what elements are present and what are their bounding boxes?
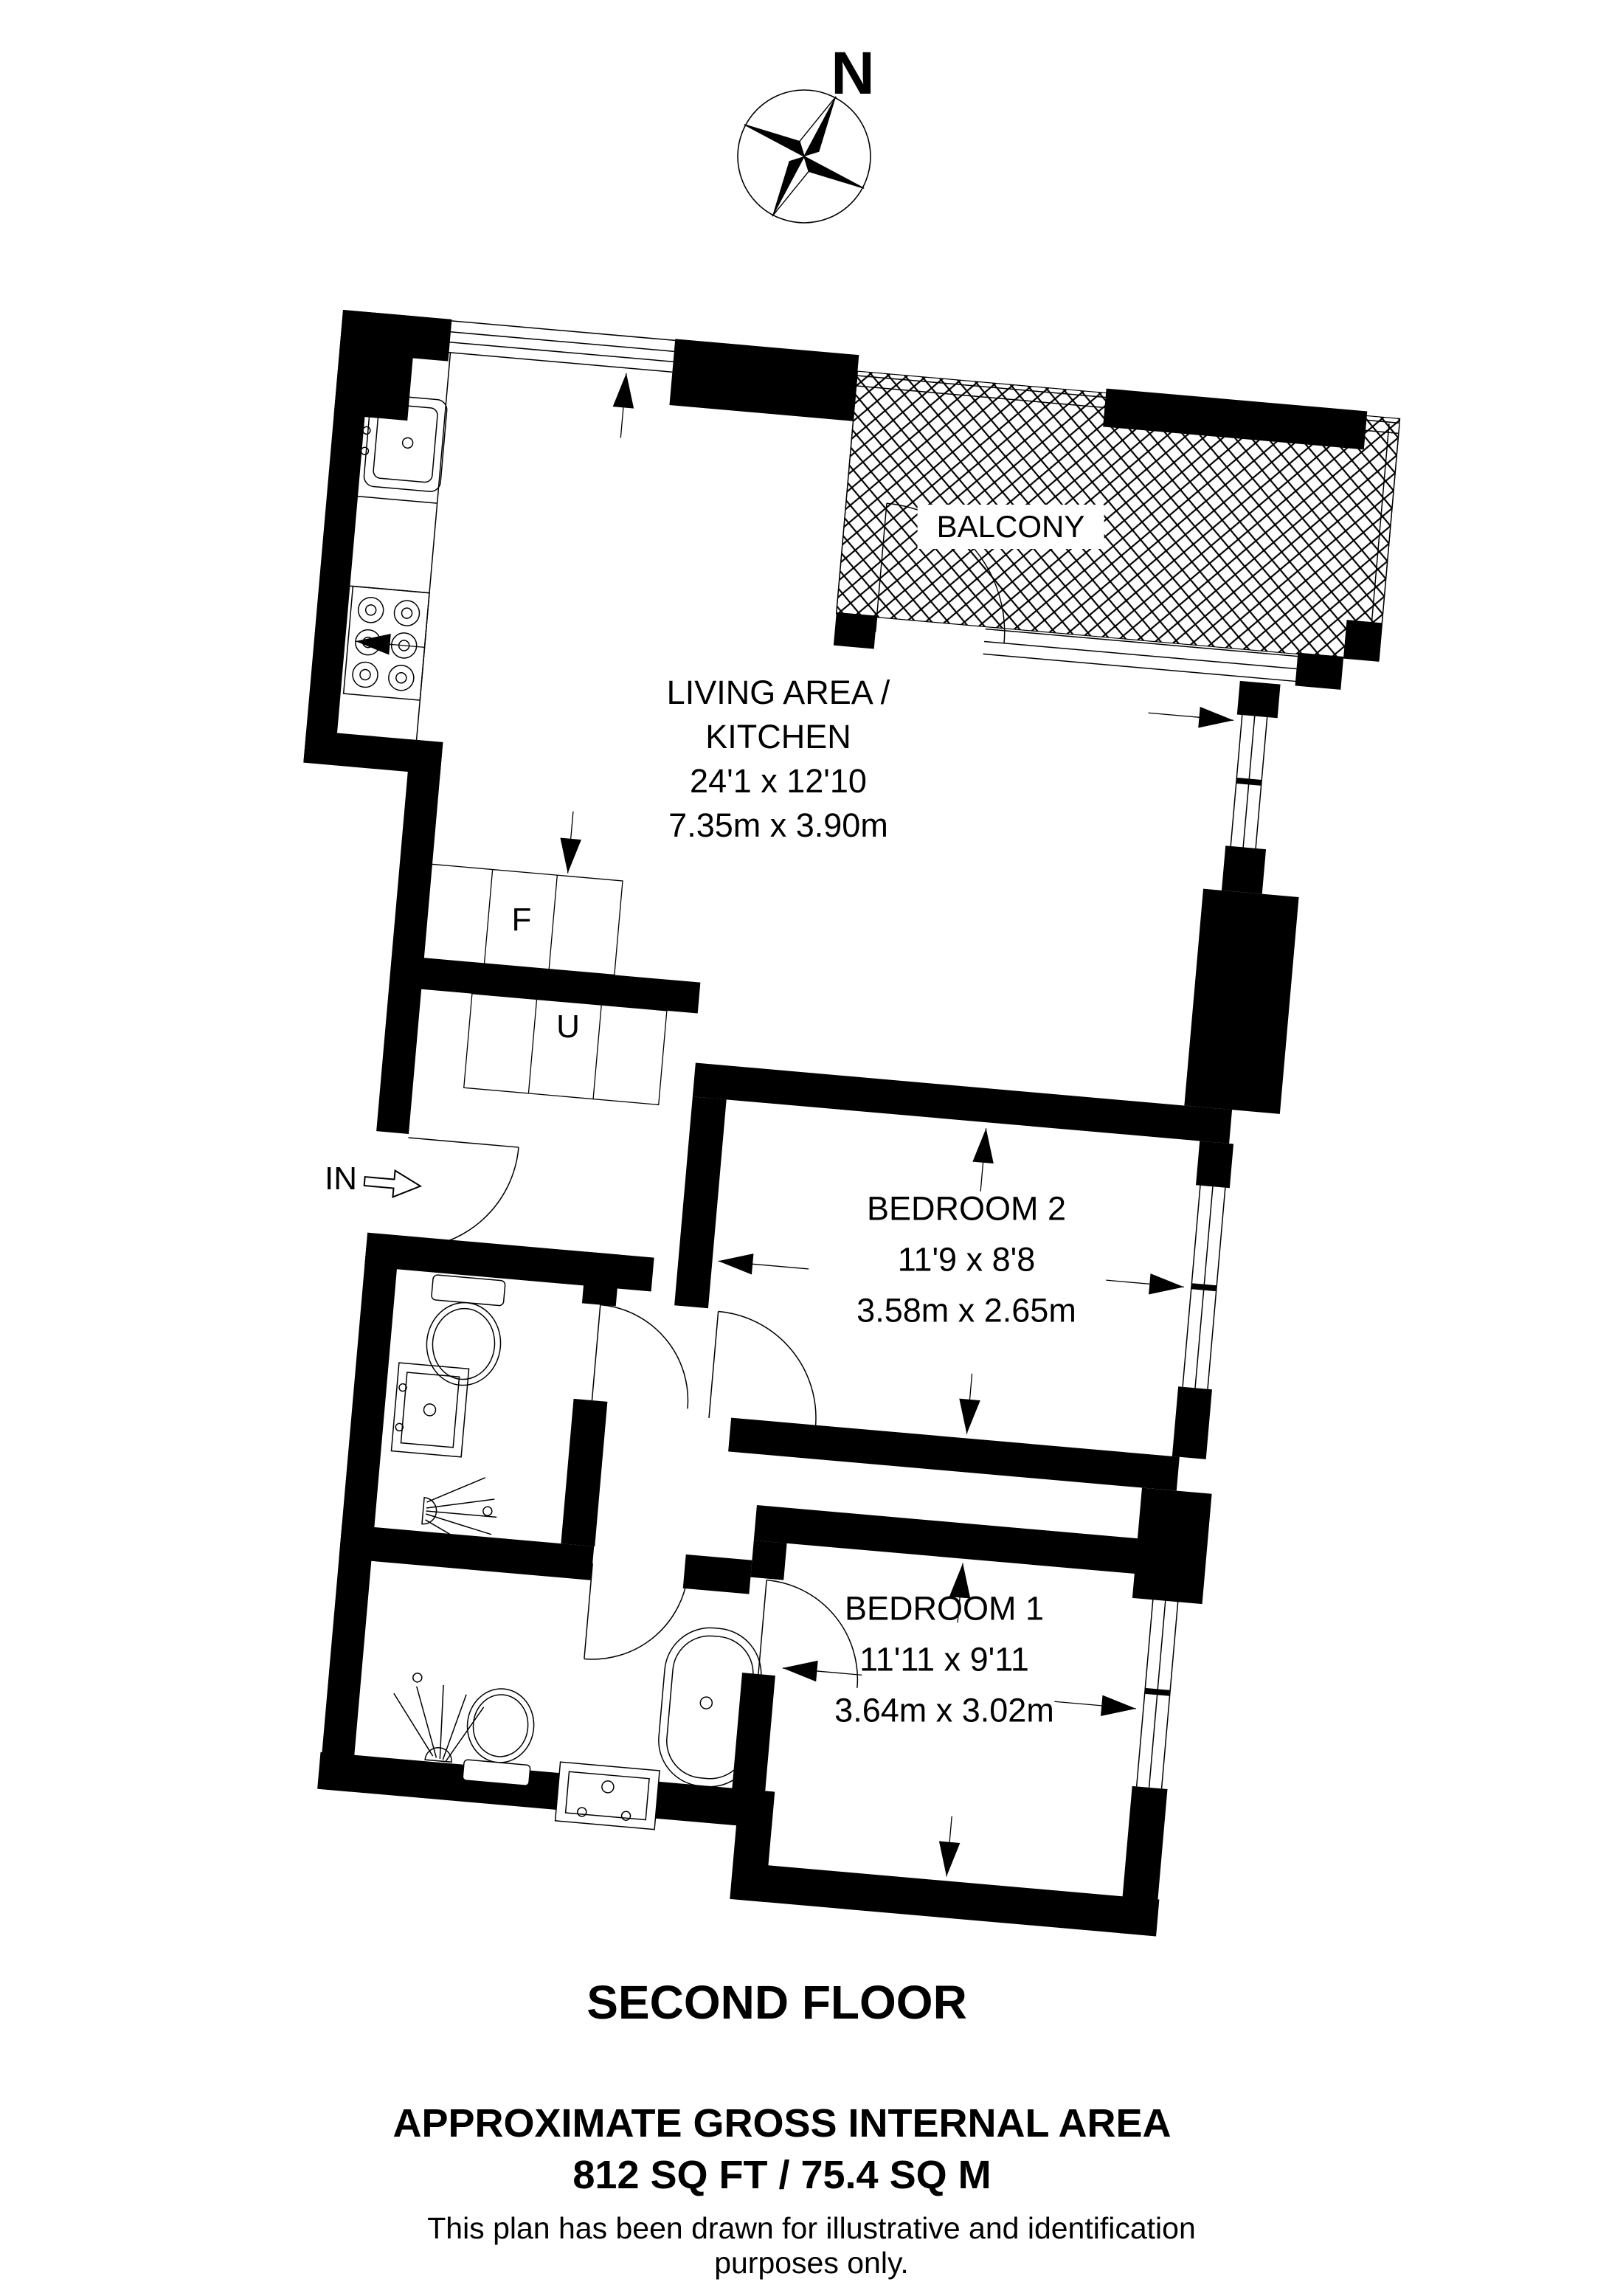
area-heading: APPROXIMATE GROSS INTERNAL AREA xyxy=(392,2100,1171,2146)
vanity-basin-icon xyxy=(556,1762,660,1829)
toilet-icon xyxy=(423,1275,506,1389)
bedroom2-label: BEDROOM 2 11'9 x 8'8 3.58m x 2.65m xyxy=(857,1183,1076,1336)
shower-room-fixtures xyxy=(384,1273,518,1553)
toilet-icon xyxy=(463,1686,537,1785)
kitchen-hob-icon xyxy=(344,587,429,701)
compass-north-label: N xyxy=(831,39,874,108)
arrow-bedroom1-bottom xyxy=(947,1816,952,1877)
bathtub-icon xyxy=(655,1624,765,1791)
shower-room-door xyxy=(592,1305,696,1409)
bedroom1-label: BEDROOM 1 11'11 x 9'11 3.64m x 3.02m xyxy=(834,1583,1054,1736)
entry-label: IN xyxy=(325,1161,357,1197)
arrow-fridge-top xyxy=(568,812,573,874)
floorplan-drawing xyxy=(0,0,1623,2296)
area-value: 812 SQ FT / 75.4 SQ M xyxy=(572,2152,991,2198)
bedroom2-door xyxy=(709,1311,825,1427)
doors xyxy=(364,466,1015,1692)
arrow-bedroom2-right xyxy=(1106,1280,1184,1287)
floor-title: SECOND FLOOR xyxy=(586,1975,967,2030)
bath-shower-icon xyxy=(388,1671,486,1764)
fridge-label: F xyxy=(512,902,532,938)
arrow-living-right xyxy=(1149,713,1234,720)
arrow-bedroom2-left xyxy=(719,1261,809,1269)
floorplan-page: N BALCONY LIVING AREA / KITCHEN 24'1 x 1… xyxy=(0,0,1623,2296)
arrow-kitchen-left xyxy=(356,641,425,647)
arrow-bedroom2-top xyxy=(980,1128,986,1192)
arrow-wall-down xyxy=(966,1374,972,1434)
arrow-living-top xyxy=(620,373,626,438)
bathroom-door xyxy=(584,1563,688,1667)
basin-icon xyxy=(391,1363,468,1457)
living-area-label: LIVING AREA / KITCHEN 24'1 x 12'10 7.35m… xyxy=(667,671,890,848)
entry-arrow-icon xyxy=(364,1168,422,1199)
arrow-bedroom1-right xyxy=(1054,1701,1136,1709)
utility-label: U xyxy=(556,1009,580,1045)
balcony-label: BALCONY xyxy=(918,505,1104,549)
disclaimer-text: This plan has been drawn for illustrativ… xyxy=(406,2211,1217,2281)
